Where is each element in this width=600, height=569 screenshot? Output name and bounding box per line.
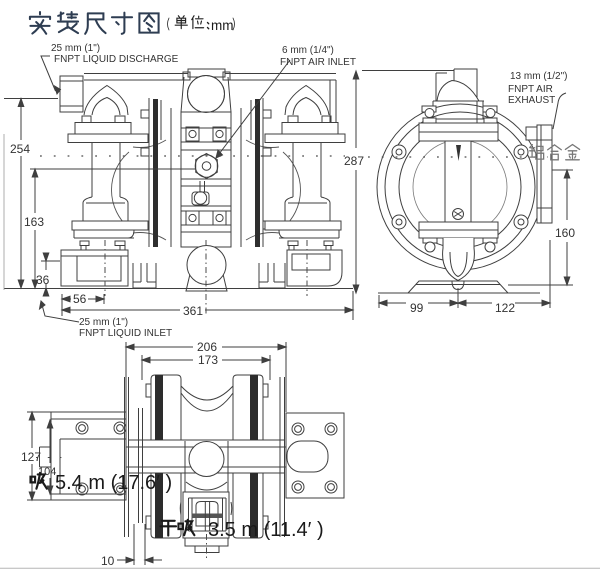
svg-text:287: 287 <box>344 154 364 168</box>
svg-text:25 mm (1"): 25 mm (1") <box>79 317 128 328</box>
svg-text:FNPT AIR INLET: FNPT AIR INLET <box>280 57 356 68</box>
svg-text:361: 361 <box>183 304 203 318</box>
svg-text:FNPT LIQUID DISCHARGE: FNPT LIQUID DISCHARGE <box>54 54 179 65</box>
svg-text:mm: mm <box>211 18 234 33</box>
svg-text:5.4 m (17.6′ ): 5.4 m (17.6′ ) <box>55 472 172 494</box>
svg-text:FNPT AIR: FNPT AIR <box>508 84 553 95</box>
svg-text:160: 160 <box>555 226 575 240</box>
svg-text:6 mm (1/4"): 6 mm (1/4") <box>282 45 334 56</box>
svg-text:3.5 m (11.4′ ): 3.5 m (11.4′ ) <box>208 519 324 541</box>
svg-text:36: 36 <box>36 273 50 287</box>
svg-text:254: 254 <box>10 142 30 156</box>
svg-text:99: 99 <box>410 301 424 315</box>
svg-text:206: 206 <box>197 340 217 354</box>
svg-text:13 mm (1/2"): 13 mm (1/2") <box>510 71 567 82</box>
svg-text:104: 104 <box>38 466 56 478</box>
svg-text:127: 127 <box>21 450 41 464</box>
svg-text:FNPT LIQUID INLET: FNPT LIQUID INLET <box>79 328 172 339</box>
svg-text:10: 10 <box>101 554 115 568</box>
svg-text:56: 56 <box>73 292 87 306</box>
svg-text:173: 173 <box>198 353 218 367</box>
svg-text:122: 122 <box>495 301 515 315</box>
svg-text:EXHAUST: EXHAUST <box>508 95 555 106</box>
svg-text:163: 163 <box>24 215 44 229</box>
svg-text:25 mm (1"): 25 mm (1") <box>51 43 100 54</box>
